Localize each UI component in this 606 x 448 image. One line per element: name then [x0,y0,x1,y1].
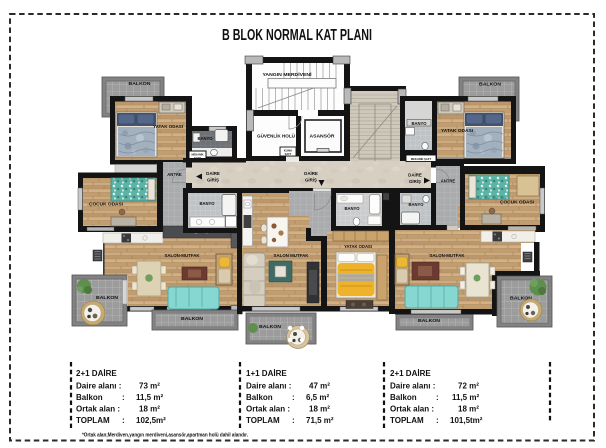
svg-text:BALKON: BALKON [479,82,502,87]
svg-text::: : [436,416,439,425]
svg-text:BALKON: BALKON [181,316,203,321]
svg-text:SALON MUTFAK: SALON MUTFAK [274,253,310,258]
svg-text:Ortak alan :: Ortak alan : [390,405,434,414]
svg-text:YATAK ODASI: YATAK ODASI [344,244,372,249]
svg-text:BANYO: BANYO [411,121,427,126]
svg-text:GİRİŞ: GİRİŞ [305,178,317,183]
svg-text:11,5 m²: 11,5 m² [452,393,479,402]
svg-text:1+1 DAİRE: 1+1 DAİRE [246,369,287,378]
svg-text:GÜVENLİK HOLÜ: GÜVENLİK HOLÜ [257,134,295,139]
svg-text:BALKON: BALKON [129,81,152,86]
svg-text:BALKON: BALKON [259,324,281,329]
svg-text:TOPLAM: TOPLAM [76,416,110,425]
svg-text:MEKANİK ŞAFT: MEKANİK ŞAFT [411,157,432,161]
svg-text:2+1 DAİRE: 2+1 DAİRE [390,369,431,378]
svg-text:47 m²: 47 m² [309,382,330,391]
svg-text:101,5tm²: 101,5tm² [450,416,483,425]
svg-text:Balkon: Balkon [76,393,103,402]
svg-text:Ortak alan :: Ortak alan : [76,405,120,414]
svg-text:BALKON: BALKON [96,295,118,300]
svg-text:ANTRE: ANTRE [167,172,182,177]
svg-text:*Ortak alan;Merdiven,yangın me: *Ortak alan;Merdiven,yangın merdiveni,as… [82,433,248,439]
svg-text:73 m²: 73 m² [139,382,160,391]
svg-text:BALKON: BALKON [418,318,440,323]
svg-text:18 m²: 18 m² [309,405,330,414]
svg-text:ÇOCUK ODASI: ÇOCUK ODASI [89,202,123,207]
svg-text:B BLOK NORMAL KAT PLANI: B BLOK NORMAL KAT PLANI [222,27,372,44]
svg-text:Balkon: Balkon [390,393,417,402]
svg-text::: : [292,393,295,402]
svg-text:GİRİŞ: GİRİŞ [207,178,219,183]
svg-text:ASANSÖR: ASANSÖR [310,134,336,139]
svg-text:TOPLAM: TOPLAM [246,416,280,425]
svg-text::: : [292,416,295,425]
svg-text:BANYO: BANYO [197,136,213,141]
svg-text:DAİRE: DAİRE [408,173,422,178]
svg-text:18 m²: 18 m² [139,405,160,414]
svg-text:2+1 DAİRE: 2+1 DAİRE [76,369,117,378]
svg-text:TOPLAM: TOPLAM [390,416,424,425]
svg-text:Ortak alan :: Ortak alan : [246,405,290,414]
svg-text:YATAK ODASI: YATAK ODASI [153,124,183,129]
svg-text:BANYO: BANYO [199,201,215,206]
svg-text:Daire alanı :: Daire alanı : [390,382,435,391]
svg-text:ÇOCUK ODASI: ÇOCUK ODASI [500,200,534,205]
svg-text:11,5 m²: 11,5 m² [136,393,163,402]
svg-text:72 m²: 72 m² [458,382,479,391]
svg-text:71,5 m²: 71,5 m² [306,416,334,425]
svg-text:DAİRE: DAİRE [304,171,318,176]
svg-text:ŞAFT: ŞAFT [285,152,292,156]
svg-text:SALON-MUTFAK: SALON-MUTFAK [164,253,200,258]
svg-text:DAİRE: DAİRE [206,171,220,176]
svg-text::: : [436,393,439,402]
svg-text:SALON-MUTFAK: SALON-MUTFAK [429,253,465,258]
svg-text:YATAK ODASI: YATAK ODASI [441,128,473,133]
svg-text::: : [122,416,125,425]
svg-text:GİRİŞ: GİRİŞ [409,179,421,184]
svg-text:6,5 m²: 6,5 m² [306,393,329,402]
svg-text:BANYO: BANYO [344,206,360,211]
svg-text:Daire alanı :: Daire alanı : [246,382,291,391]
svg-text:Daire alanı :: Daire alanı : [76,382,121,391]
svg-text:BANYO: BANYO [408,202,424,207]
svg-text:18 m²: 18 m² [458,405,479,414]
svg-text:YANGIN MERDİVENİ: YANGIN MERDİVENİ [263,71,312,77]
svg-text:Balkon: Balkon [246,393,273,402]
svg-text:102,5m²: 102,5m² [136,416,166,425]
svg-text::: : [122,393,125,402]
